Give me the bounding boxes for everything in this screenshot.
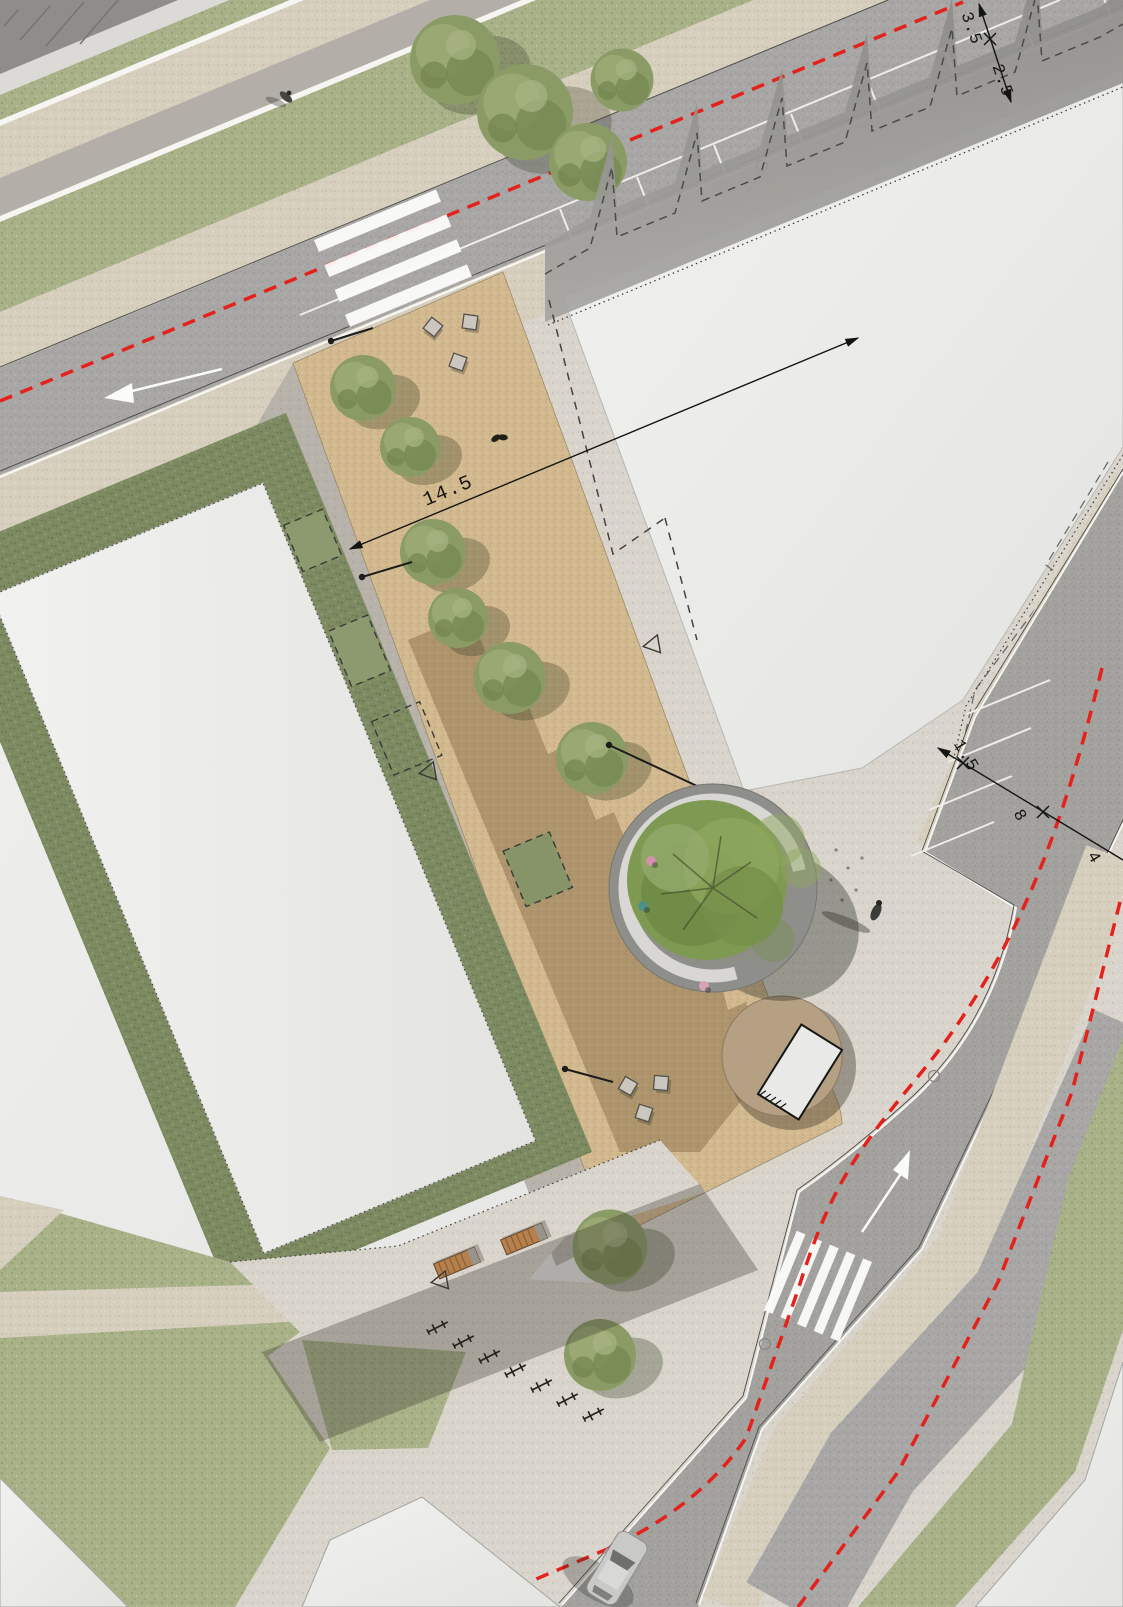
planter-tree-canopy bbox=[627, 800, 821, 962]
site-plan-rendering: 14.5 3.5 2.5 1.5 8 4 bbox=[0, 0, 1123, 1607]
site-plan-page: 14.5 3.5 2.5 1.5 8 4 bbox=[0, 0, 1123, 1607]
